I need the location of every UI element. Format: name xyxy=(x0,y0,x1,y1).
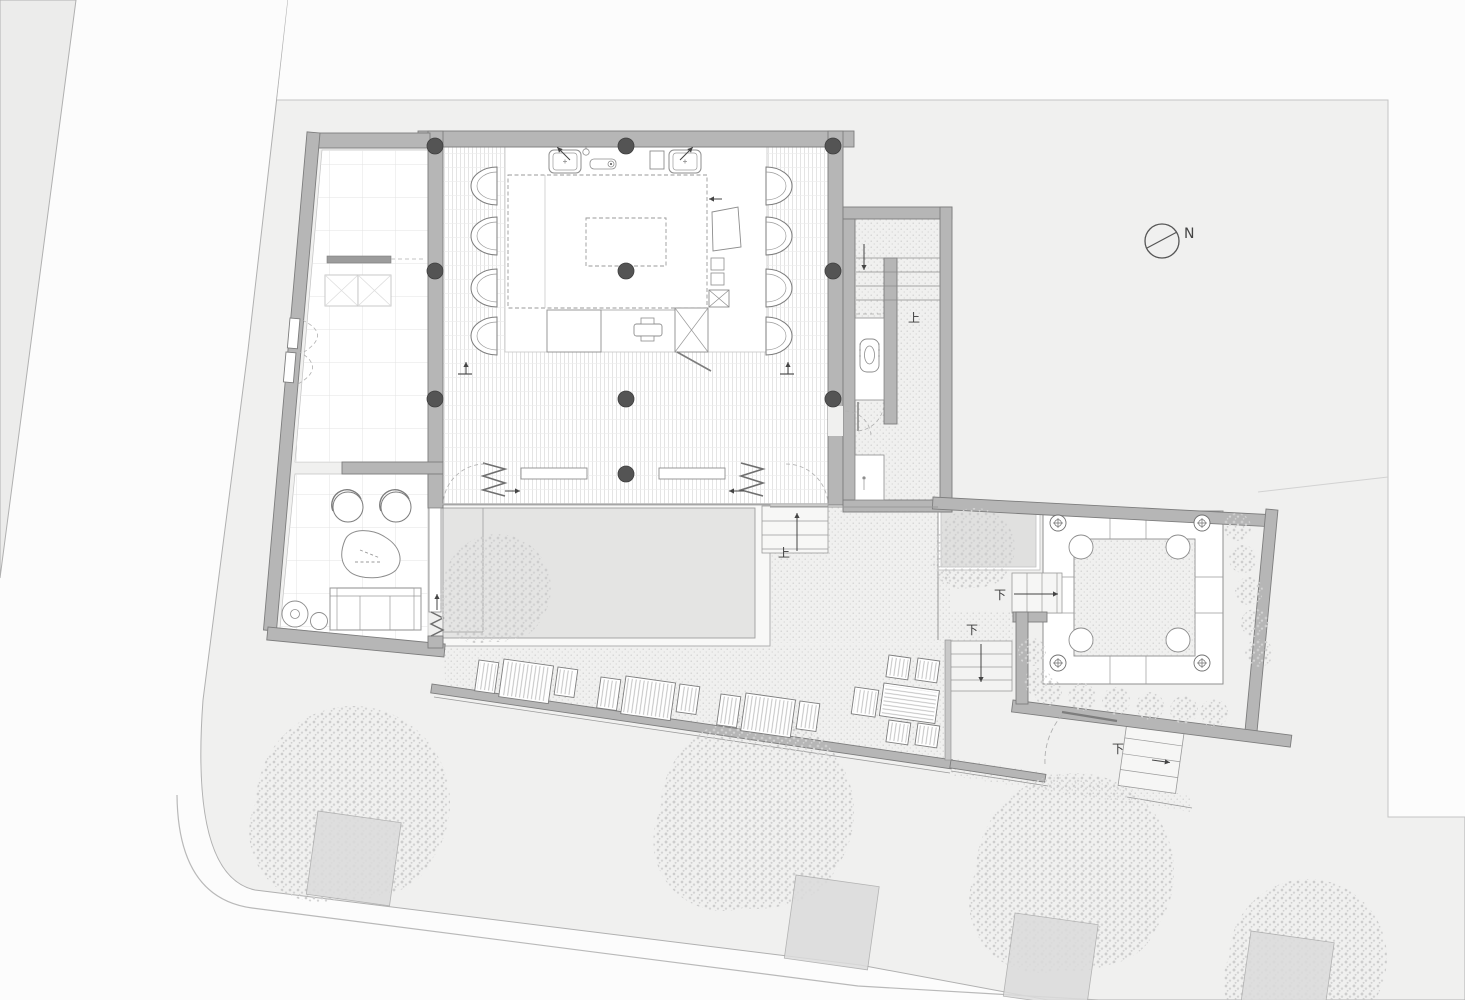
floor-plan-drawing: N 上 上 下 下 下 xyxy=(0,0,1465,1000)
up-label-wing: 上 xyxy=(908,311,920,325)
crossed-box-icon xyxy=(709,290,729,307)
sink-left-icon xyxy=(549,150,581,173)
sink-right-icon xyxy=(669,150,701,173)
display-panel-icon xyxy=(712,207,741,251)
hall-east-door-gap xyxy=(828,406,843,436)
outdoor-lounger-stripes xyxy=(888,657,908,677)
down-label-terrace: 下 xyxy=(966,623,978,637)
hall-wall-north xyxy=(418,131,854,147)
planting-bed xyxy=(1003,913,1098,1000)
outdoor-lounger-stripes xyxy=(888,722,908,742)
stove-icons xyxy=(325,275,391,306)
side-table xyxy=(311,613,328,630)
column xyxy=(825,391,841,407)
bush xyxy=(1200,699,1228,727)
outdoor-lounger-stripes xyxy=(743,695,793,735)
bush xyxy=(1024,668,1052,696)
squat-toilet-icon xyxy=(859,339,880,372)
kitchen-counter xyxy=(327,256,391,263)
column xyxy=(618,391,634,407)
tray-icon xyxy=(590,159,616,169)
outdoor-lounger-stripes xyxy=(854,689,877,715)
bush xyxy=(1136,692,1164,720)
kitchen-wall-north xyxy=(308,133,430,148)
outdoor-lounger-stripes xyxy=(917,660,937,680)
board-icon xyxy=(650,151,664,169)
column xyxy=(427,263,443,279)
wing-wall-west xyxy=(843,219,855,500)
column xyxy=(618,138,634,154)
wing-wall-east xyxy=(940,207,952,512)
tree-canopy xyxy=(965,541,1009,585)
shower-room xyxy=(855,455,884,500)
lounge-wall-east-b xyxy=(428,636,443,648)
hall-wall-west xyxy=(428,131,443,505)
outdoor-lounger-stripes xyxy=(556,669,575,695)
veranda-stair-southeast xyxy=(762,506,828,553)
column xyxy=(427,138,443,154)
bush xyxy=(1102,687,1130,715)
column xyxy=(618,263,634,279)
planting-bed xyxy=(784,875,879,970)
sofa-icon xyxy=(330,588,421,630)
bush xyxy=(1068,683,1096,711)
courtyard-round-table xyxy=(1069,628,1093,652)
street-east xyxy=(1388,0,1465,817)
bush xyxy=(1245,639,1273,667)
north-label: N xyxy=(1184,226,1194,242)
small-box-a xyxy=(711,258,724,270)
courtyard-round-table xyxy=(1166,628,1190,652)
down-label-gate: 下 xyxy=(1112,742,1124,756)
side-table xyxy=(282,601,308,627)
outdoor-lounger-stripes xyxy=(798,703,817,729)
bush xyxy=(1229,545,1257,573)
courtyard-round-table xyxy=(1069,535,1093,559)
kitchen-lounge-divider xyxy=(342,462,443,474)
swivel-chair xyxy=(333,492,363,522)
sliding-panel-right xyxy=(659,468,725,479)
bush xyxy=(1241,609,1269,637)
bush xyxy=(1018,638,1046,666)
planting-bed xyxy=(1239,931,1334,1000)
swivel-chair xyxy=(381,492,411,522)
up-label-terrace: 上 xyxy=(778,546,790,560)
outdoor-lounger-stripes xyxy=(501,661,551,701)
tree-canopy xyxy=(484,579,543,638)
small-box-b xyxy=(711,273,724,285)
down-label-courtyard: 下 xyxy=(994,588,1006,602)
stair-spine-wall xyxy=(884,258,897,424)
floor-plan-canvas: N 上 上 下 下 下 xyxy=(0,0,1465,1000)
column xyxy=(618,466,634,482)
wing-wall-north xyxy=(843,207,952,219)
bush xyxy=(1223,513,1251,541)
planting-bed xyxy=(306,811,401,906)
hall-wall-east xyxy=(828,131,843,505)
terrace-fence xyxy=(945,640,951,760)
bush xyxy=(1170,696,1198,724)
south-counter xyxy=(547,310,601,352)
outdoor-lounger-stripes xyxy=(917,725,937,745)
outdoor-lounger-stripes xyxy=(623,678,673,718)
street-north xyxy=(277,0,1388,100)
sliding-panel-left xyxy=(521,468,587,479)
bush xyxy=(1235,577,1263,605)
courtyard-round-table xyxy=(1166,535,1190,559)
center-table xyxy=(586,218,666,266)
column xyxy=(427,391,443,407)
lounge-wall-east-a xyxy=(428,474,443,508)
column xyxy=(825,263,841,279)
outdoor-lounger-stripes xyxy=(678,686,697,712)
column xyxy=(825,138,841,154)
